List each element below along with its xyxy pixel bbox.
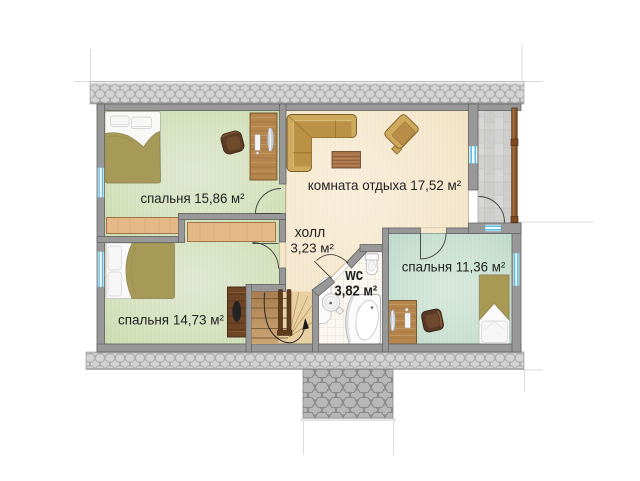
svg-text:комната отдыха 17,52 м²: комната отдыха 17,52 м² — [308, 177, 462, 193]
svg-text:спальня 15,86 м²: спальня 15,86 м² — [141, 190, 245, 206]
svg-text:3,23 м²: 3,23 м² — [290, 241, 334, 255]
svg-text:спальня 14,73 м²: спальня 14,73 м² — [118, 312, 224, 328]
svg-text:холл: холл — [295, 224, 326, 241]
svg-text:3,82 м²: 3,82 м² — [335, 283, 378, 299]
svg-text:спальня 11,36 м²: спальня 11,36 м² — [402, 259, 506, 275]
svg-text:wc: wc — [344, 266, 363, 284]
